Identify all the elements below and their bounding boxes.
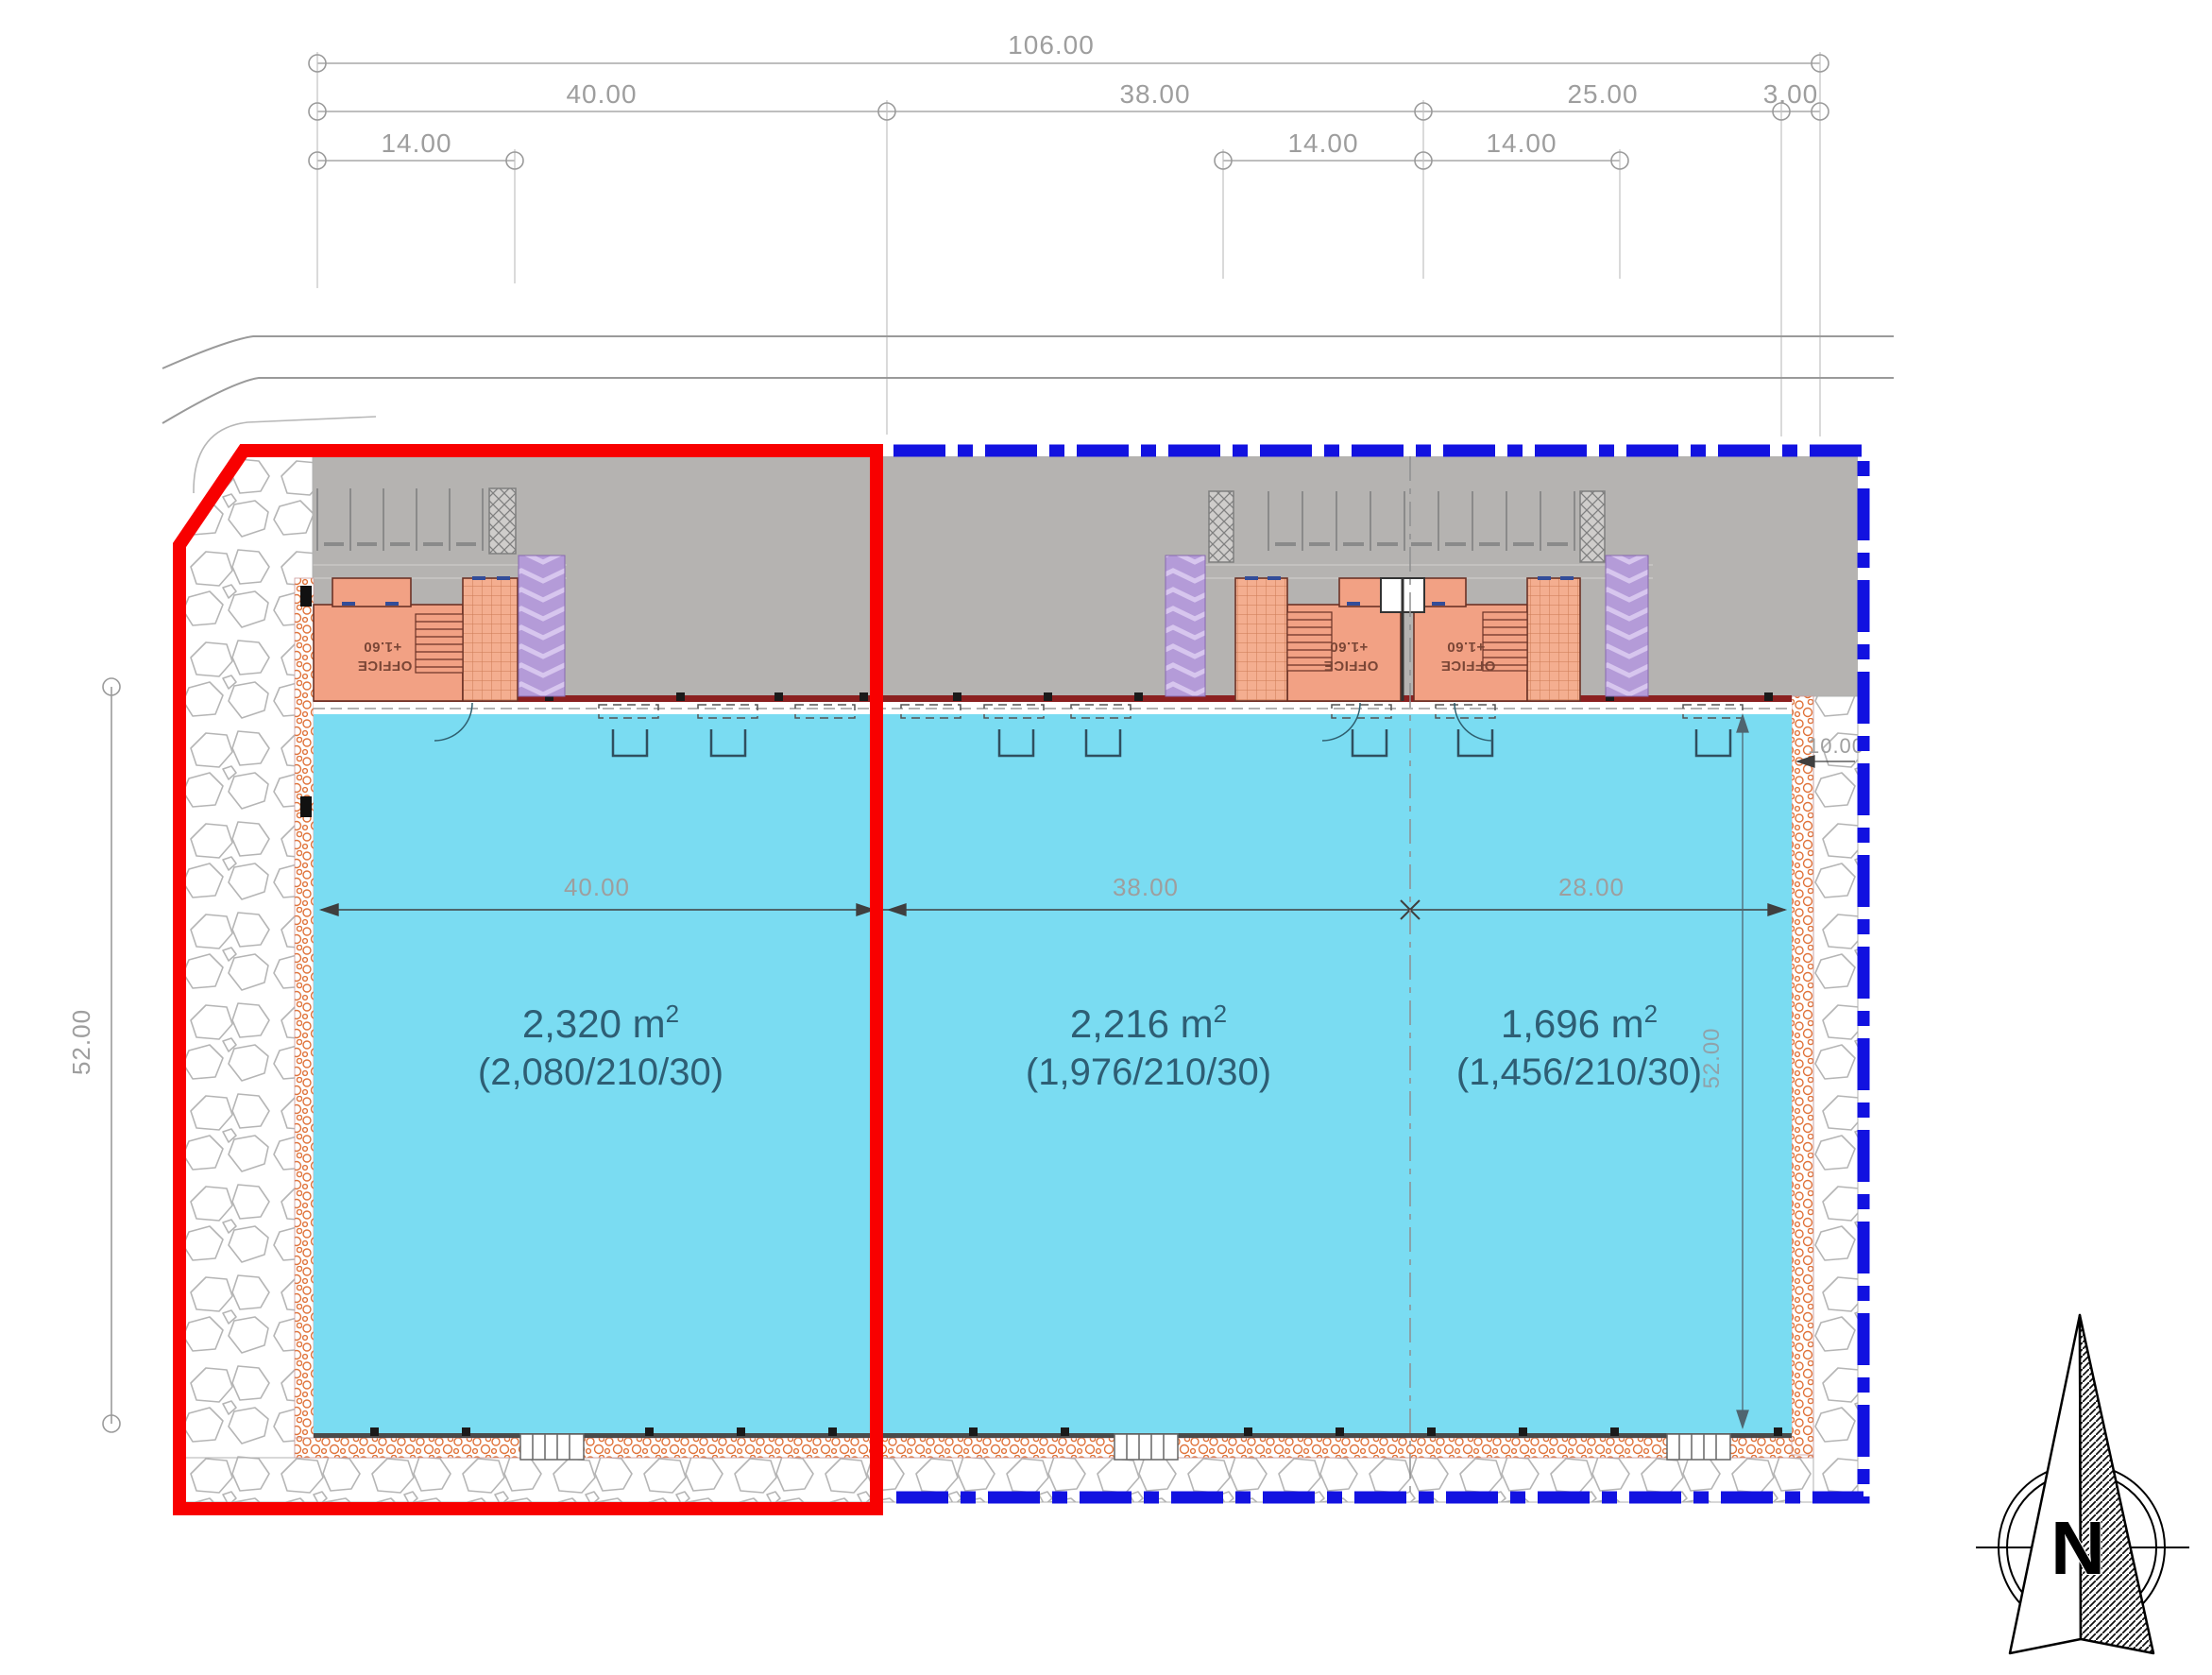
- north-letter: N: [2050, 1506, 2105, 1590]
- dim-overall-label: 106.00: [1008, 30, 1095, 60]
- dim-40-label: 40.00: [566, 79, 637, 109]
- unit-2-area-label: 2,216 m2: [1070, 1000, 1227, 1046]
- unit-3-program-label: (1,456/210/30): [1456, 1051, 1702, 1093]
- dim-3-label: 3.00: [1763, 79, 1819, 109]
- unit-3-area: 1,696 m: [1501, 1001, 1644, 1046]
- dim-height-right: 52.00: [1699, 1027, 1725, 1088]
- unit-1-area: 2,320 m: [522, 1001, 666, 1046]
- dim-14c-label: 14.00: [1486, 128, 1557, 158]
- dim-interior-40: 40.00: [564, 873, 630, 901]
- left-height-dimension: [103, 678, 120, 1432]
- office-2-name: OFFICE: [1323, 658, 1378, 674]
- office-2-level: +1.60: [1330, 639, 1368, 655]
- dim-offset-right: 10.00: [1808, 734, 1864, 758]
- stairs-1: [416, 614, 463, 673]
- dim-height-left: 52.00: [67, 1009, 95, 1075]
- office-1-name: OFFICE: [357, 658, 412, 674]
- office-3-level: +1.60: [1447, 639, 1485, 655]
- office-1-level: +1.60: [364, 639, 401, 655]
- unit-1-area-label: 2,320 m2: [522, 1000, 679, 1046]
- unit-3-area-label: 1,696 m2: [1501, 1000, 1658, 1046]
- dim-14a-label: 14.00: [381, 128, 451, 158]
- unit-3-area-sup: 2: [1644, 1000, 1658, 1028]
- unit-2-area-sup: 2: [1214, 1000, 1227, 1028]
- site-plan-drawing: 106.00 40.00 38.00 25.00 3.00 14.00 14.0…: [0, 0, 2212, 1675]
- dim-14b-label: 14.00: [1287, 128, 1358, 158]
- dim-25-label: 25.00: [1567, 79, 1638, 109]
- ramp-3: [1606, 555, 1648, 696]
- north-arrow: N: [1976, 1315, 2189, 1653]
- office-3-name: OFFICE: [1440, 658, 1495, 674]
- unit-1-area-sup: 2: [666, 1000, 679, 1028]
- unit-2-program-label: (1,976/210/30): [1026, 1051, 1271, 1093]
- dim-interior-38: 38.00: [1113, 873, 1179, 901]
- unit-2-area: 2,216 m: [1070, 1001, 1214, 1046]
- top-dimension-labels: 106.00 40.00 38.00 25.00 3.00 14.00 14.0…: [381, 30, 1818, 158]
- dim-interior-28: 28.00: [1558, 873, 1625, 901]
- dim-38-label: 38.00: [1119, 79, 1190, 109]
- site-plan-canvas: 106.00 40.00 38.00 25.00 3.00 14.00 14.0…: [0, 0, 2212, 1675]
- ramp-2: [1166, 555, 1205, 696]
- ramp-1: [519, 555, 565, 696]
- unit-1-program-label: (2,080/210/30): [478, 1051, 723, 1093]
